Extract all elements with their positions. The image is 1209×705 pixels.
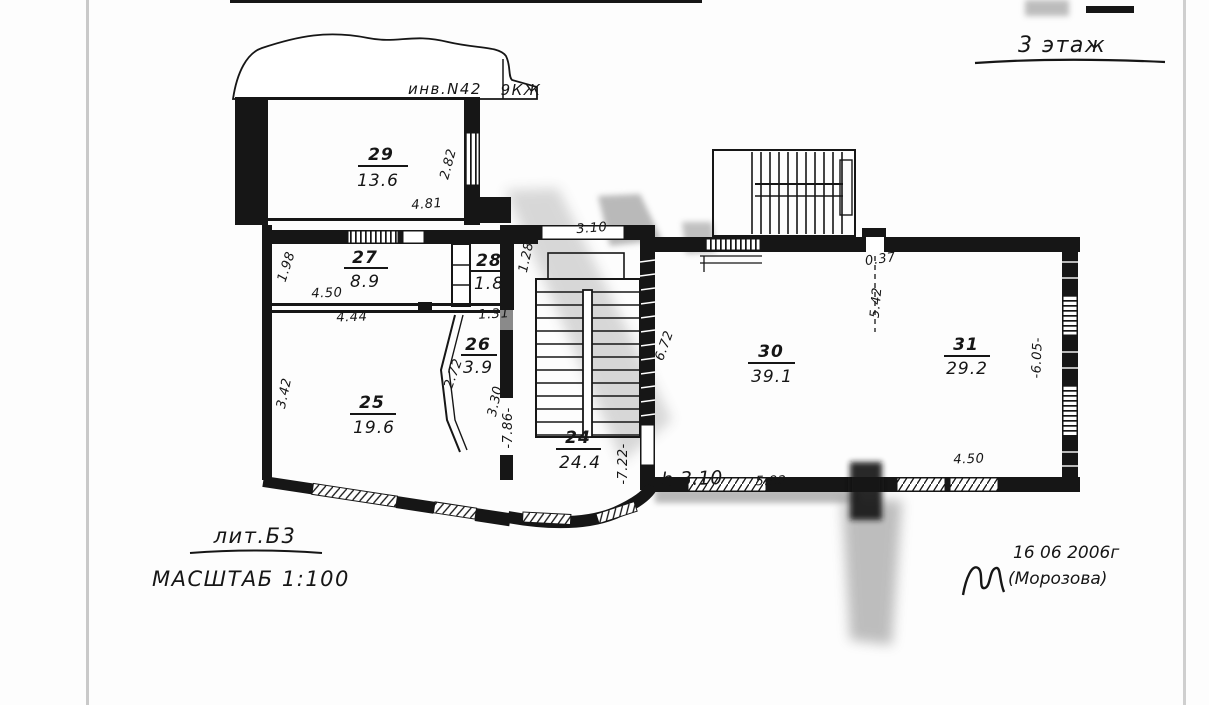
scale-label: МАСШТАБ 1:100: [152, 567, 350, 591]
executor-label: (Морозова): [1008, 569, 1107, 589]
signature-scribble: [963, 567, 1004, 595]
floor-plan-drawing: инв.N42 9КЖ: [0, 0, 1209, 705]
window-room24-right: [641, 425, 654, 465]
wall-hall-pier: [418, 302, 432, 313]
dim-3-10: 3.10: [576, 220, 608, 237]
dim-7-22: -7.22-: [616, 443, 631, 484]
window-bottom-curve-1: [522, 512, 570, 524]
liter-underline: [190, 551, 322, 554]
scan-edge-left: [86, 0, 89, 705]
room-31-number: 31: [953, 335, 979, 355]
window-room31-right-2: [1063, 385, 1077, 437]
room-29-label: 29 13.6: [357, 145, 408, 191]
room-26-label: 26 3.9: [461, 335, 497, 378]
scroll-outline: [233, 34, 537, 99]
porch-blob: [850, 462, 882, 520]
external-staircase: [700, 150, 855, 272]
door-gap-top: [866, 237, 884, 252]
wall-room29-top: [268, 97, 480, 100]
floor-label: 3 этаж: [1018, 33, 1106, 58]
dim-4-50-a: 4.50: [311, 285, 342, 301]
room-27-label: 27 8.9: [344, 248, 388, 292]
dim-5-82: 5.82: [755, 474, 786, 490]
wall-stair-left-upper: [500, 225, 514, 310]
wall-hall-bottom-line: [272, 310, 512, 313]
wall-corner-step: [480, 197, 511, 223]
dim-4-50-b: 4.50: [953, 451, 984, 467]
room-26-number: 26: [465, 335, 491, 355]
room-30-label: 30 39.1: [748, 342, 795, 387]
room-30-number: 30: [758, 342, 784, 362]
dim-5-42: 5.42: [868, 287, 886, 319]
floor-label-underline: [975, 60, 1165, 63]
window-room31-right-1: [1063, 295, 1077, 335]
wall-left: [235, 97, 272, 480]
room-24-area: 24.4: [559, 453, 601, 473]
dim-3-42: 3.42: [274, 377, 295, 410]
room-27-area: 8.9: [350, 272, 380, 292]
wall-27-top: [262, 230, 538, 244]
scan-smudge-top-right: [1025, 0, 1069, 16]
wall-room29-bottom: [268, 218, 480, 221]
partition-27-28: [452, 244, 470, 306]
room-31-area: 29.2: [946, 359, 988, 379]
dim-1-98: 1.98: [275, 250, 299, 284]
scan-smudge-column: [842, 500, 902, 645]
room-25-number: 25: [359, 393, 385, 413]
wall-right-block-right: [1062, 237, 1078, 489]
dim-6-05: -6.05-: [1029, 337, 1045, 379]
ceiling-height-note: h-3.10: [661, 467, 723, 491]
window-27-top: [348, 231, 398, 243]
series-label: 9КЖ: [501, 81, 542, 99]
wall-hall-top-line: [272, 303, 512, 306]
window-room31-bottom-2: [950, 478, 998, 491]
dim-7-86: -7.86-: [501, 407, 516, 448]
page-annotations: 3 этаж лит.Б3 МАСШТАБ 1:100 16 06 2006г …: [152, 33, 1165, 595]
dim-4-44: 4.44: [336, 309, 367, 325]
dimension-labels: 2.82 4.81 1.98 4.50 4.44 1.31 1.28 3.10 …: [274, 147, 1046, 491]
door-jamb-top: [862, 228, 886, 237]
scanned-floor-plan-page: инв.N42 9КЖ: [0, 0, 1209, 705]
window-bottom-curve-2: [596, 502, 637, 524]
room-26-area: 3.9: [463, 358, 493, 378]
dim-2-82: 2.82: [437, 147, 460, 181]
dim-1-28: 1.28: [516, 241, 537, 274]
room-29-area: 13.6: [357, 171, 399, 191]
room-25-area: 19.6: [353, 418, 395, 438]
room-31-label: 31 29.2: [944, 335, 990, 379]
wall-bottom-left-straight: [262, 476, 511, 526]
wall-bottom-left: [262, 476, 652, 526]
inventory-label: инв.N42: [408, 80, 482, 98]
ext-stair-entry-steps: [700, 256, 762, 272]
dim-1-31: 1.31: [478, 306, 510, 323]
dim-4-81: 4.81: [411, 196, 443, 213]
date-label: 16 06 2006г: [1013, 543, 1119, 563]
dim-0-37: 0.37: [864, 250, 897, 269]
room-30-area: 39.1: [751, 367, 793, 387]
scan-edge-right: [1183, 0, 1186, 705]
room-24-number: 24: [565, 428, 591, 448]
wall-room26-right-lower: [500, 455, 513, 480]
inventory-scroll: инв.N42 9КЖ: [233, 34, 541, 99]
room-28-number: 28: [476, 251, 502, 271]
window-top-under-stair: [705, 239, 760, 250]
scan-mark-top-line: [230, 0, 702, 3]
room-27-number: 27: [352, 248, 378, 268]
room-28-area: 1.8: [474, 274, 504, 294]
dim-6-72: 6.72: [652, 329, 677, 363]
window-room31-bottom-1: [897, 478, 945, 491]
room-29-number: 29: [368, 145, 394, 165]
window-27-top-2: [403, 231, 424, 243]
stair-stringer: [583, 290, 592, 437]
liter-label: лит.Б3: [213, 524, 297, 548]
ext-stair-treads: [752, 152, 842, 234]
window-room29: [465, 133, 479, 185]
scan-mark-dash: [1086, 6, 1134, 13]
room-25-label: 25 19.6: [350, 393, 396, 438]
